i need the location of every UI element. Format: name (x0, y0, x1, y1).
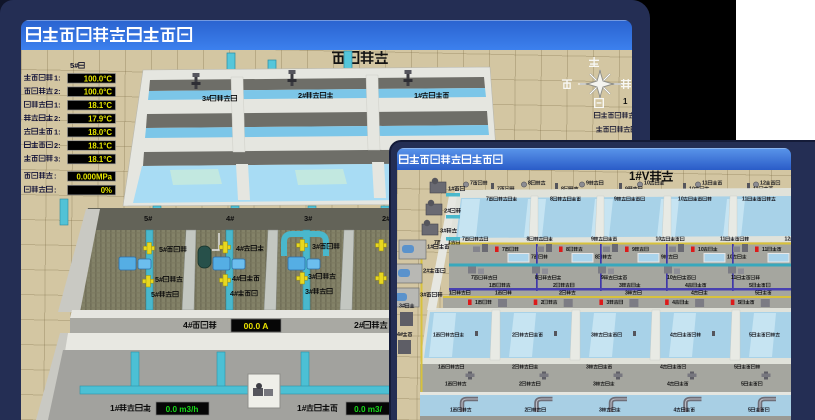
svg-text:10: 10 (678, 197, 684, 203)
svg-text:3#: 3# (420, 293, 427, 299)
svg-text:9: 9 (586, 181, 589, 187)
svg-text:2: 2 (553, 283, 556, 289)
svg-text::: : (54, 186, 56, 195)
svg-text::: : (54, 172, 56, 181)
svg-text:2:: 2: (54, 114, 61, 123)
svg-text::: : (212, 322, 215, 331)
svg-text:3: 3 (606, 300, 609, 306)
svg-text:4: 4 (674, 408, 677, 414)
svg-text:3: 3 (619, 283, 622, 289)
svg-text:4#: 4# (397, 332, 403, 338)
svg-text:10: 10 (698, 247, 704, 253)
svg-text:5#: 5# (159, 245, 167, 254)
svg-text:0.0 m3/h: 0.0 m3/h (166, 405, 199, 414)
svg-text:5#: 5# (144, 214, 153, 223)
svg-text:3#: 3# (399, 304, 405, 310)
svg-text:5#: 5# (151, 290, 159, 299)
svg-text:2#: 2# (423, 269, 430, 275)
svg-text:2: 2 (519, 382, 522, 388)
svg-text:18.0°C: 18.0°C (88, 128, 112, 137)
svg-text:2: 2 (559, 290, 562, 296)
svg-text:8: 8 (528, 181, 531, 187)
svg-text:5: 5 (749, 283, 752, 289)
svg-text:5#: 5# (155, 275, 163, 284)
svg-text:7: 7 (470, 181, 473, 187)
svg-text:4#: 4# (226, 214, 235, 223)
svg-text:7: 7 (462, 237, 465, 243)
svg-text:8: 8 (566, 247, 569, 253)
svg-text:9: 9 (614, 197, 617, 203)
svg-text:4#: 4# (232, 274, 240, 283)
svg-text:3#: 3# (305, 287, 313, 296)
svg-text:3#: 3# (312, 242, 320, 251)
svg-text:1#: 1# (448, 187, 455, 193)
svg-text:3#: 3# (440, 229, 447, 235)
svg-text:4: 4 (672, 300, 675, 306)
svg-text:11: 11 (702, 181, 708, 187)
svg-text:2#: 2# (354, 320, 364, 330)
svg-text:10: 10 (644, 181, 650, 187)
svg-text:18.1°C: 18.1°C (88, 142, 112, 151)
svg-text:4#: 4# (236, 244, 244, 253)
svg-text:1#: 1# (427, 245, 434, 251)
svg-text:0%: 0% (101, 186, 112, 195)
svg-text:0.0 m3/: 0.0 m3/ (354, 405, 382, 414)
svg-text::: : (335, 405, 338, 414)
svg-text:5: 5 (748, 408, 751, 414)
svg-text:8: 8 (595, 255, 598, 261)
svg-text:2: 2 (512, 365, 515, 371)
svg-text:1: 1 (438, 365, 441, 371)
svg-text:3: 3 (586, 365, 589, 371)
svg-text:18.1°C: 18.1°C (88, 101, 112, 110)
svg-text:7: 7 (531, 255, 534, 261)
svg-text:10: 10 (667, 275, 673, 281)
svg-text:2#: 2# (298, 91, 306, 100)
svg-text:7: 7 (486, 197, 489, 203)
svg-text:17.9°C: 17.9°C (88, 115, 112, 124)
svg-text:2: 2 (525, 408, 528, 414)
svg-text:5: 5 (749, 333, 752, 339)
svg-text:5: 5 (734, 365, 737, 371)
svg-text:7: 7 (434, 240, 437, 246)
svg-text:1: 1 (495, 290, 498, 296)
svg-text:3: 3 (593, 382, 596, 388)
svg-text:3#: 3# (202, 94, 210, 103)
svg-text:3#: 3# (308, 272, 316, 281)
svg-text:2:: 2: (54, 141, 61, 150)
svg-text:1: 1 (475, 300, 478, 306)
svg-text:1: 1 (450, 408, 453, 414)
svg-text:11: 11 (731, 275, 737, 281)
svg-text:00.0 A: 00.0 A (244, 321, 269, 331)
svg-text:11: 11 (720, 237, 726, 243)
svg-text:3:: 3: (54, 154, 61, 163)
svg-text:4: 4 (660, 365, 663, 371)
svg-text:9: 9 (661, 255, 664, 261)
svg-text:9: 9 (601, 275, 604, 281)
svg-text:1#: 1# (297, 403, 307, 413)
svg-text:1: 1 (445, 382, 448, 388)
svg-text:1:: 1: (54, 128, 61, 137)
svg-text:4#: 4# (230, 289, 238, 298)
svg-text:8: 8 (527, 237, 530, 243)
svg-text:7: 7 (502, 247, 505, 253)
svg-text:2:: 2: (54, 87, 61, 96)
svg-text:12: 12 (785, 237, 791, 243)
svg-text:4: 4 (691, 290, 694, 296)
svg-text::: : (148, 405, 151, 414)
svg-text:100.0°C: 100.0°C (84, 88, 113, 97)
svg-text:1: 1 (489, 283, 492, 289)
svg-text:18.1°C: 18.1°C (88, 155, 112, 164)
svg-text:5: 5 (741, 382, 744, 388)
svg-text:8: 8 (535, 275, 538, 281)
svg-text:7: 7 (471, 275, 474, 281)
svg-text:4: 4 (685, 283, 688, 289)
svg-text:1: 1 (433, 333, 436, 339)
svg-text:4: 4 (667, 382, 670, 388)
svg-text:4: 4 (670, 333, 673, 339)
svg-text:3#: 3# (304, 214, 313, 223)
svg-text:1#: 1# (414, 91, 422, 100)
svg-text:10: 10 (656, 237, 662, 243)
svg-text:1#: 1# (110, 403, 120, 413)
svg-text:12: 12 (760, 181, 766, 187)
svg-text:2: 2 (512, 333, 515, 339)
svg-text:5: 5 (738, 300, 741, 306)
svg-text:5: 5 (755, 290, 758, 296)
svg-text:1:: 1: (54, 74, 61, 83)
svg-text:3: 3 (591, 333, 594, 339)
svg-text:3: 3 (625, 290, 628, 296)
svg-text:8: 8 (550, 197, 553, 203)
svg-text:1:: 1: (54, 101, 61, 110)
svg-text:11: 11 (742, 197, 748, 203)
svg-text:2#: 2# (444, 209, 451, 215)
svg-text:9: 9 (591, 237, 594, 243)
svg-text:3: 3 (599, 408, 602, 414)
svg-text:100.0°C: 100.0°C (84, 74, 113, 83)
svg-text:1: 1 (449, 290, 452, 296)
svg-text:1: 1 (623, 97, 628, 106)
svg-text:0.000MPa: 0.000MPa (76, 172, 112, 181)
svg-text:5#: 5# (70, 61, 79, 70)
svg-text:11: 11 (762, 247, 768, 253)
svg-text:4#: 4# (183, 320, 193, 330)
svg-text:2: 2 (541, 300, 544, 306)
svg-text:9: 9 (632, 247, 635, 253)
svg-text:10: 10 (727, 255, 733, 261)
